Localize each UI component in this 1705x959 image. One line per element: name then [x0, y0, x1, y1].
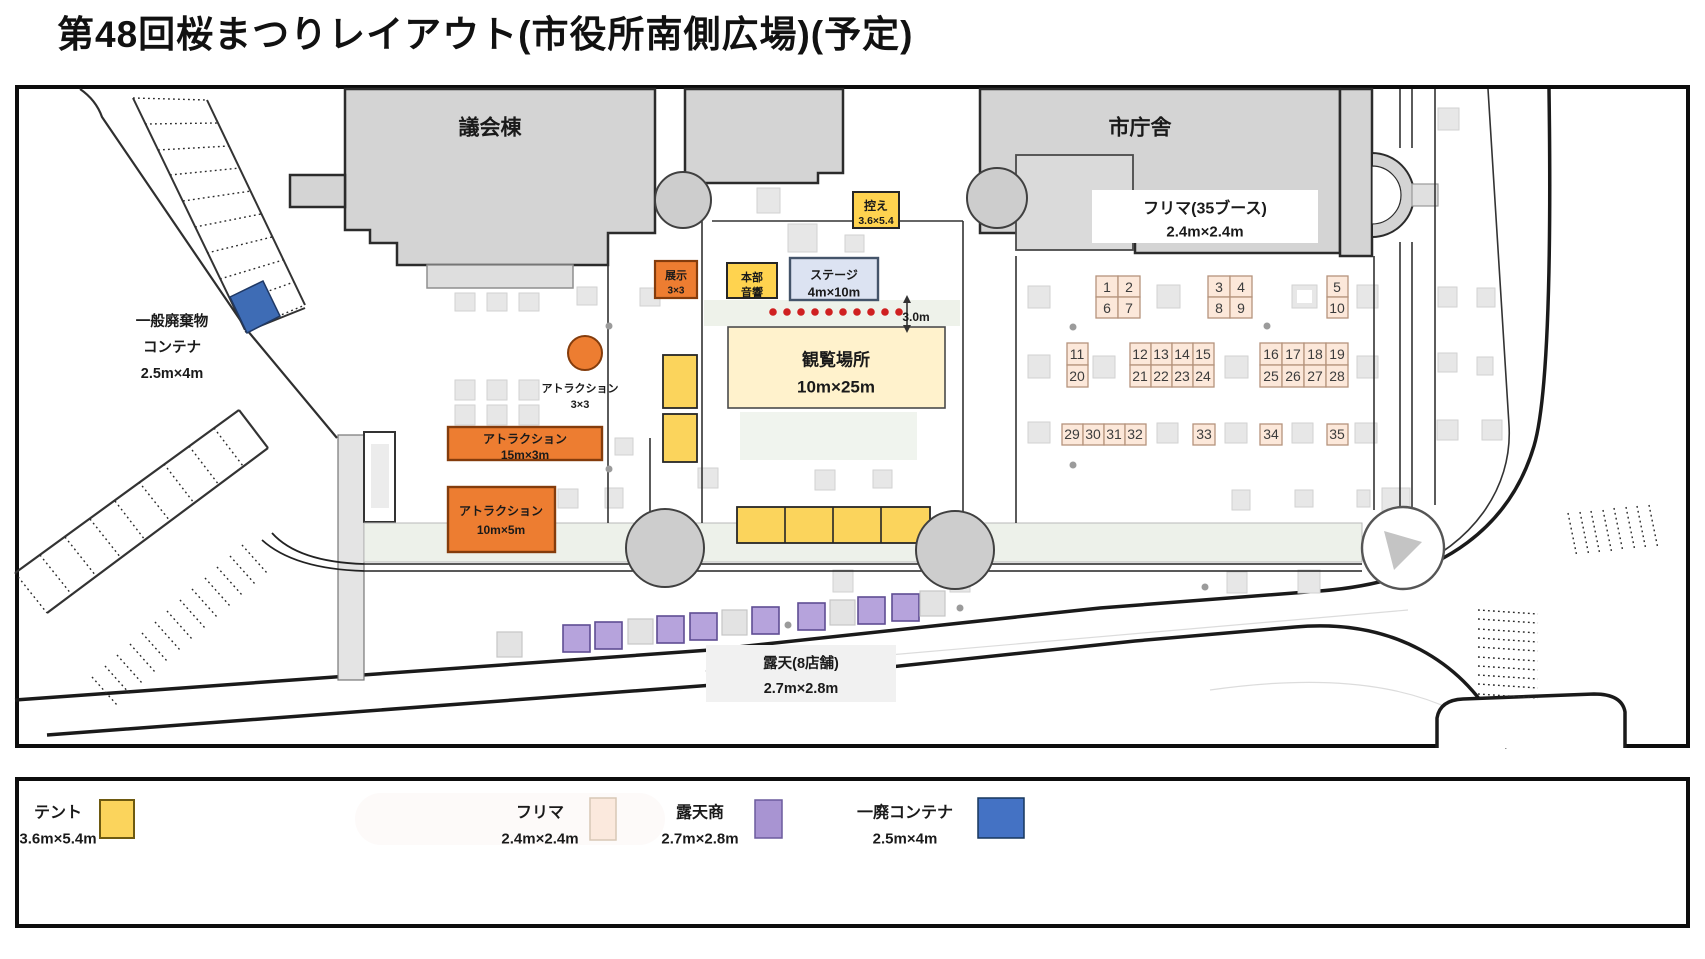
svg-text:2: 2 [1125, 279, 1133, 295]
central-building [685, 89, 843, 183]
assembly-building-label: 議会棟 [459, 116, 523, 140]
flea-booth-cell: 9 [1230, 297, 1252, 318]
legend-tent-label: テント [34, 805, 82, 822]
viewing-size: 10m×25m [797, 378, 875, 397]
exhibit-size: 3×3 [668, 286, 685, 297]
flea-booth-cell: 25 [1260, 365, 1282, 387]
flea-booth-cell: 13 [1151, 343, 1172, 365]
svg-text:31: 31 [1106, 426, 1122, 442]
svg-text:35: 35 [1329, 426, 1345, 442]
svg-text:4: 4 [1237, 279, 1245, 295]
attraction-circle [568, 336, 602, 370]
flea-booth-cell: 21 [1130, 365, 1151, 387]
waiting-size: 3.6×5.4 [858, 215, 893, 227]
svg-text:30: 30 [1085, 426, 1101, 442]
hq-label: 本部 [741, 270, 763, 284]
flea-booth-cell: 28 [1326, 365, 1348, 387]
waste-label-1: 一般廃棄物 [136, 312, 209, 330]
gap-label: 3.0m [902, 310, 929, 324]
attraction-small-box [448, 487, 555, 552]
flea-booth-cell: 6 [1096, 297, 1118, 318]
svg-text:7: 7 [1125, 300, 1133, 316]
street-stalls-size: 2.7m×2.8m [764, 681, 839, 697]
svg-text:22: 22 [1153, 368, 1169, 384]
flea-booth-cell: 17 [1282, 343, 1304, 365]
attraction-wide-size: 15m×3m [501, 448, 549, 462]
tree [626, 509, 704, 587]
tree [916, 511, 994, 589]
tent [663, 355, 697, 408]
svg-text:34: 34 [1263, 426, 1279, 442]
audio-label: 音響 [741, 285, 763, 299]
flea-booth-cell: 35 [1327, 424, 1348, 445]
flea-booth-cell: 12 [1130, 343, 1151, 365]
flea-booth-cell: 27 [1304, 365, 1326, 387]
flea-booth-cell: 32 [1125, 424, 1146, 445]
svg-text:17: 17 [1285, 346, 1301, 362]
svg-text:25: 25 [1263, 368, 1279, 384]
svg-text:12: 12 [1132, 346, 1148, 362]
svg-text:14: 14 [1174, 346, 1190, 362]
svg-text:29: 29 [1064, 426, 1080, 442]
flea-booth-cell: 16 [1260, 343, 1282, 365]
waste-size: 2.5m×4m [141, 366, 203, 382]
svg-text:8: 8 [1215, 300, 1223, 316]
flea-booth-cell: 15 [1193, 343, 1214, 365]
stage-label: ステージ [810, 268, 858, 282]
flea-booth-cell: 2 [1118, 276, 1140, 297]
svg-text:23: 23 [1174, 368, 1190, 384]
legend-tent-size: 3.6m×5.4m [19, 831, 96, 848]
attraction-wide-label: アトラクション [483, 432, 567, 446]
flea-booth-cell: 23 [1172, 365, 1193, 387]
legend-container-size: 2.5m×4m [873, 831, 938, 848]
flea-booth-cell: 22 [1151, 365, 1172, 387]
svg-text:26: 26 [1285, 368, 1301, 384]
flea-booth-cell: 7 [1118, 297, 1140, 318]
flea-booth-cell: 1 [1096, 276, 1118, 297]
tent-row [737, 507, 930, 543]
exhibit-label: 展示 [664, 269, 687, 282]
flea-booth-cell: 4 [1230, 276, 1252, 297]
lawn-area [740, 412, 917, 460]
flea-booth-cell: 18 [1304, 343, 1326, 365]
legend-stall-label: 露天商 [676, 803, 724, 822]
svg-text:1: 1 [1103, 279, 1111, 295]
attraction-circle-size: 3×3 [571, 399, 590, 411]
viewing-label: 観覧場所 [802, 350, 870, 370]
svg-text:20: 20 [1069, 368, 1085, 384]
legend-tent-swatch [100, 800, 134, 838]
flea-booth-cell: 33 [1193, 424, 1215, 445]
svg-text:13: 13 [1153, 346, 1169, 362]
svg-text:5: 5 [1333, 279, 1341, 295]
flea-area-size: 2.4m×2.4m [1166, 224, 1243, 241]
flea-booth-cell: 3 [1208, 276, 1230, 297]
flea-booth-cell: 5 [1327, 276, 1348, 297]
svg-text:10: 10 [1329, 300, 1345, 316]
legend-flea-size: 2.4m×2.4m [501, 831, 578, 848]
flea-booth-cell: 24 [1193, 365, 1214, 387]
flea-booth-cell: 31 [1104, 424, 1125, 445]
attraction-small-size: 10m×5m [477, 523, 525, 537]
svg-text:32: 32 [1127, 426, 1143, 442]
flea-booth-cell: 34 [1260, 424, 1282, 445]
roundabout [1362, 507, 1444, 589]
legend-stall-swatch [755, 800, 782, 838]
legend-container-swatch [978, 798, 1024, 838]
waste-label-2: コンテナ [143, 339, 201, 356]
svg-text:15: 15 [1195, 346, 1211, 362]
flea-booth-cell: 11 [1067, 343, 1088, 365]
city-hall-label: 市庁舎 [1109, 116, 1173, 140]
svg-text:3: 3 [1215, 279, 1223, 295]
legend-frame [17, 779, 1688, 926]
flea-area-label: フリマ(35ブース) [1143, 199, 1267, 218]
attraction-circle-label: アトラクション [542, 382, 619, 395]
flea-booth-cell: 19 [1326, 343, 1348, 365]
svg-text:11: 11 [1070, 346, 1085, 362]
svg-text:33: 33 [1196, 426, 1212, 442]
svg-text:19: 19 [1329, 346, 1345, 362]
svg-text:6: 6 [1103, 300, 1111, 316]
tent [663, 414, 697, 462]
flea-booth-cell: 26 [1282, 365, 1304, 387]
festival-layout-map: 1 2 6 7 3 4 8 9 5 10 11 20 12 13 14 15 2… [0, 0, 1705, 959]
flea-booth-cell: 10 [1327, 297, 1348, 318]
svg-text:28: 28 [1329, 368, 1345, 384]
svg-text:21: 21 [1132, 368, 1148, 384]
flea-booth-cell: 20 [1067, 365, 1088, 387]
legend-stall-size: 2.7m×2.8m [661, 831, 738, 848]
flea-booth-cell: 30 [1083, 424, 1104, 445]
legend-flea-swatch [590, 798, 616, 840]
flea-booth-cell: 8 [1208, 297, 1230, 318]
legend-flea-label: フリマ [516, 805, 564, 822]
tree [967, 168, 1027, 228]
street-stalls-label: 露天(8店舗) [763, 654, 839, 672]
tree [655, 172, 711, 228]
attraction-small-label: アトラクション [459, 504, 543, 518]
legend-container-label: 一廃コンテナ [857, 803, 953, 822]
svg-text:16: 16 [1263, 346, 1279, 362]
svg-text:24: 24 [1195, 368, 1211, 384]
svg-text:9: 9 [1237, 300, 1245, 316]
svg-text:18: 18 [1307, 346, 1323, 362]
stage-size: 4m×10m [808, 285, 860, 300]
svg-text:27: 27 [1307, 368, 1323, 384]
flea-booth-cell: 29 [1062, 424, 1083, 445]
waiting-label: 控え [864, 198, 888, 213]
flea-booth-cell: 14 [1172, 343, 1193, 365]
